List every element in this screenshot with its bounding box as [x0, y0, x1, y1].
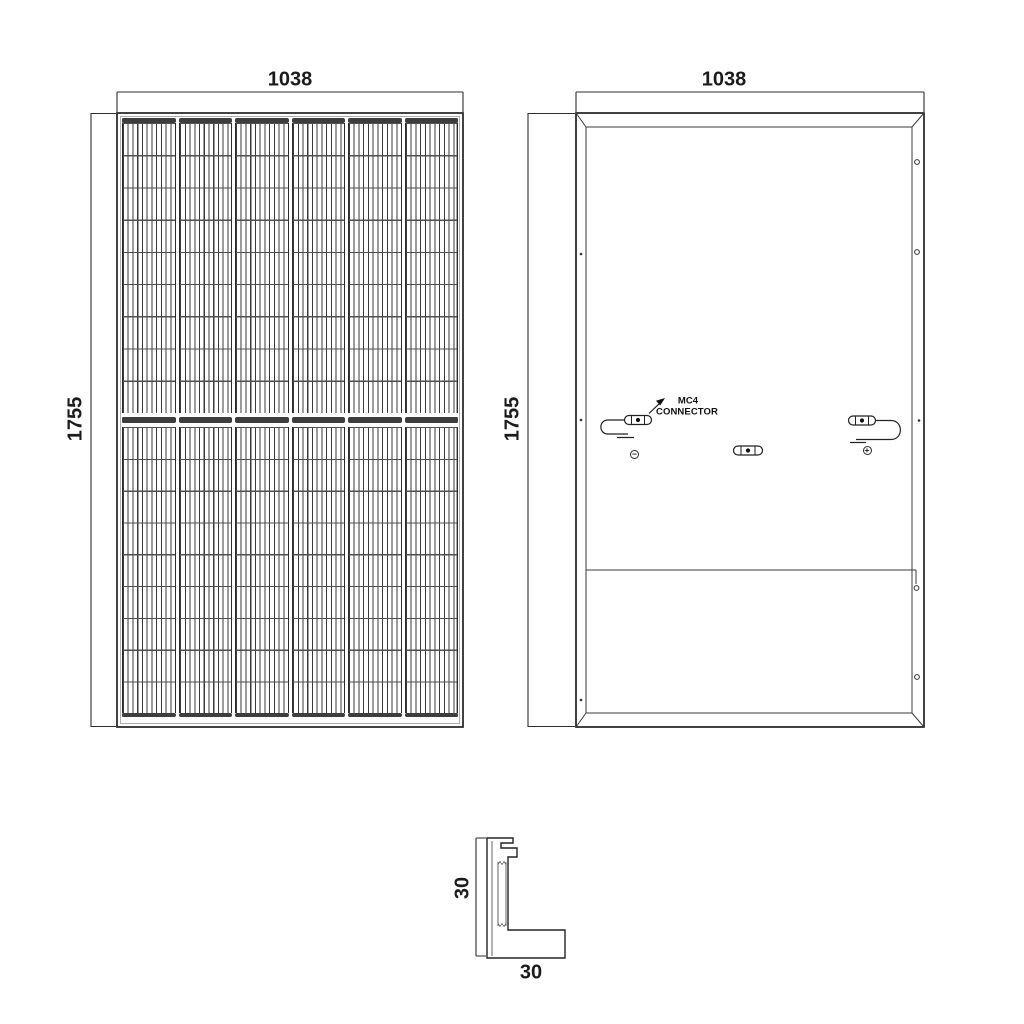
front-view-cell-grid — [122, 118, 458, 717]
solar-panel-dimensional-drawing: 1038 1755 1038 1755 MC4 CONNECTOR − + 30… — [0, 0, 1024, 1024]
negative-cable — [601, 420, 628, 434]
back-view-dimension-lines — [528, 92, 924, 727]
junction-box-connector-center — [734, 446, 763, 455]
cell-column — [179, 118, 233, 717]
cell-column — [235, 118, 289, 717]
profile-height-dimension: 30 — [452, 877, 475, 899]
cell-column — [292, 118, 346, 717]
negative-polarity-icon: − — [630, 450, 639, 459]
cell-column — [405, 118, 459, 717]
positive-polarity-icon: + — [863, 446, 872, 455]
bus-ribbon-bottom — [122, 713, 176, 717]
profile-height-dimension-line — [476, 838, 486, 956]
back-sheet-seam-line — [586, 570, 916, 584]
mounting-mark-dots — [580, 253, 921, 702]
back-height-dimension: 1755 — [502, 397, 525, 442]
mc4-callout-line2: CONNECTOR — [656, 407, 718, 418]
mc4-connector-right — [849, 416, 876, 425]
front-height-dimension: 1755 — [65, 397, 88, 442]
cell-block-lower — [122, 427, 176, 713]
back-width-dimension: 1038 — [702, 69, 747, 92]
mc4-connector-left — [625, 416, 652, 425]
profile-width-dimension: 30 — [520, 962, 542, 985]
cell-column — [348, 118, 402, 717]
cell-block-upper — [122, 123, 176, 413]
cell-column — [122, 118, 176, 717]
front-width-dimension: 1038 — [268, 69, 313, 92]
mc4-callout-line1: MC4 — [678, 395, 698, 406]
frame-profile-outline — [487, 838, 565, 958]
